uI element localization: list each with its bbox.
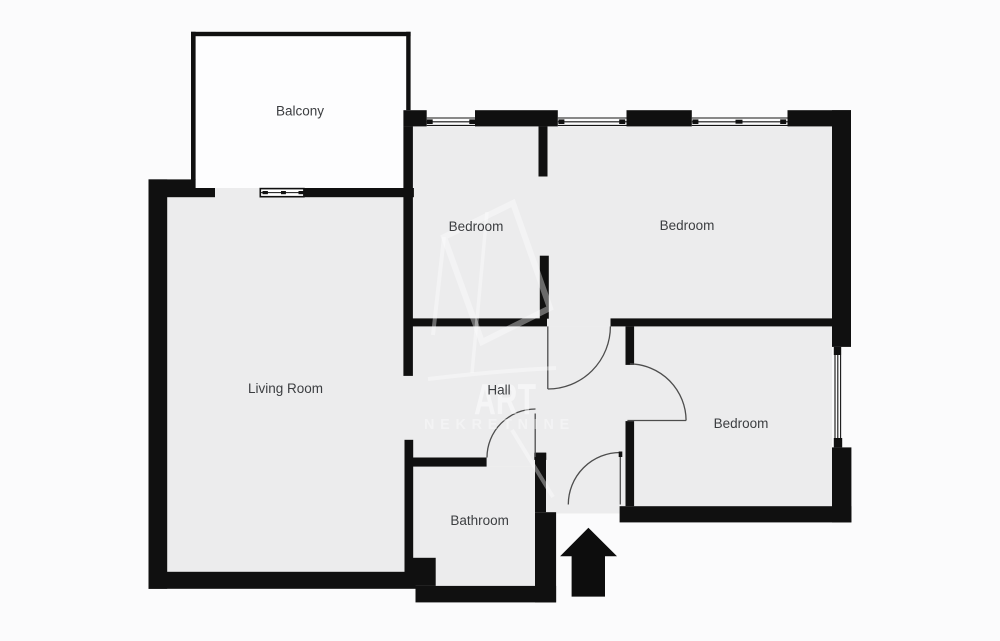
svg-text:Balcony: Balcony <box>276 104 324 119</box>
svg-text:Living Room: Living Room <box>248 381 323 396</box>
svg-text:Hall: Hall <box>487 383 510 398</box>
svg-text:Bedroom: Bedroom <box>660 218 715 233</box>
svg-text:Bathroom: Bathroom <box>450 513 509 528</box>
svg-text:Bedroom: Bedroom <box>714 416 769 431</box>
svg-text:Bedroom: Bedroom <box>449 219 504 234</box>
svg-text:NEKRETNINE: NEKRETNINE <box>424 416 575 433</box>
